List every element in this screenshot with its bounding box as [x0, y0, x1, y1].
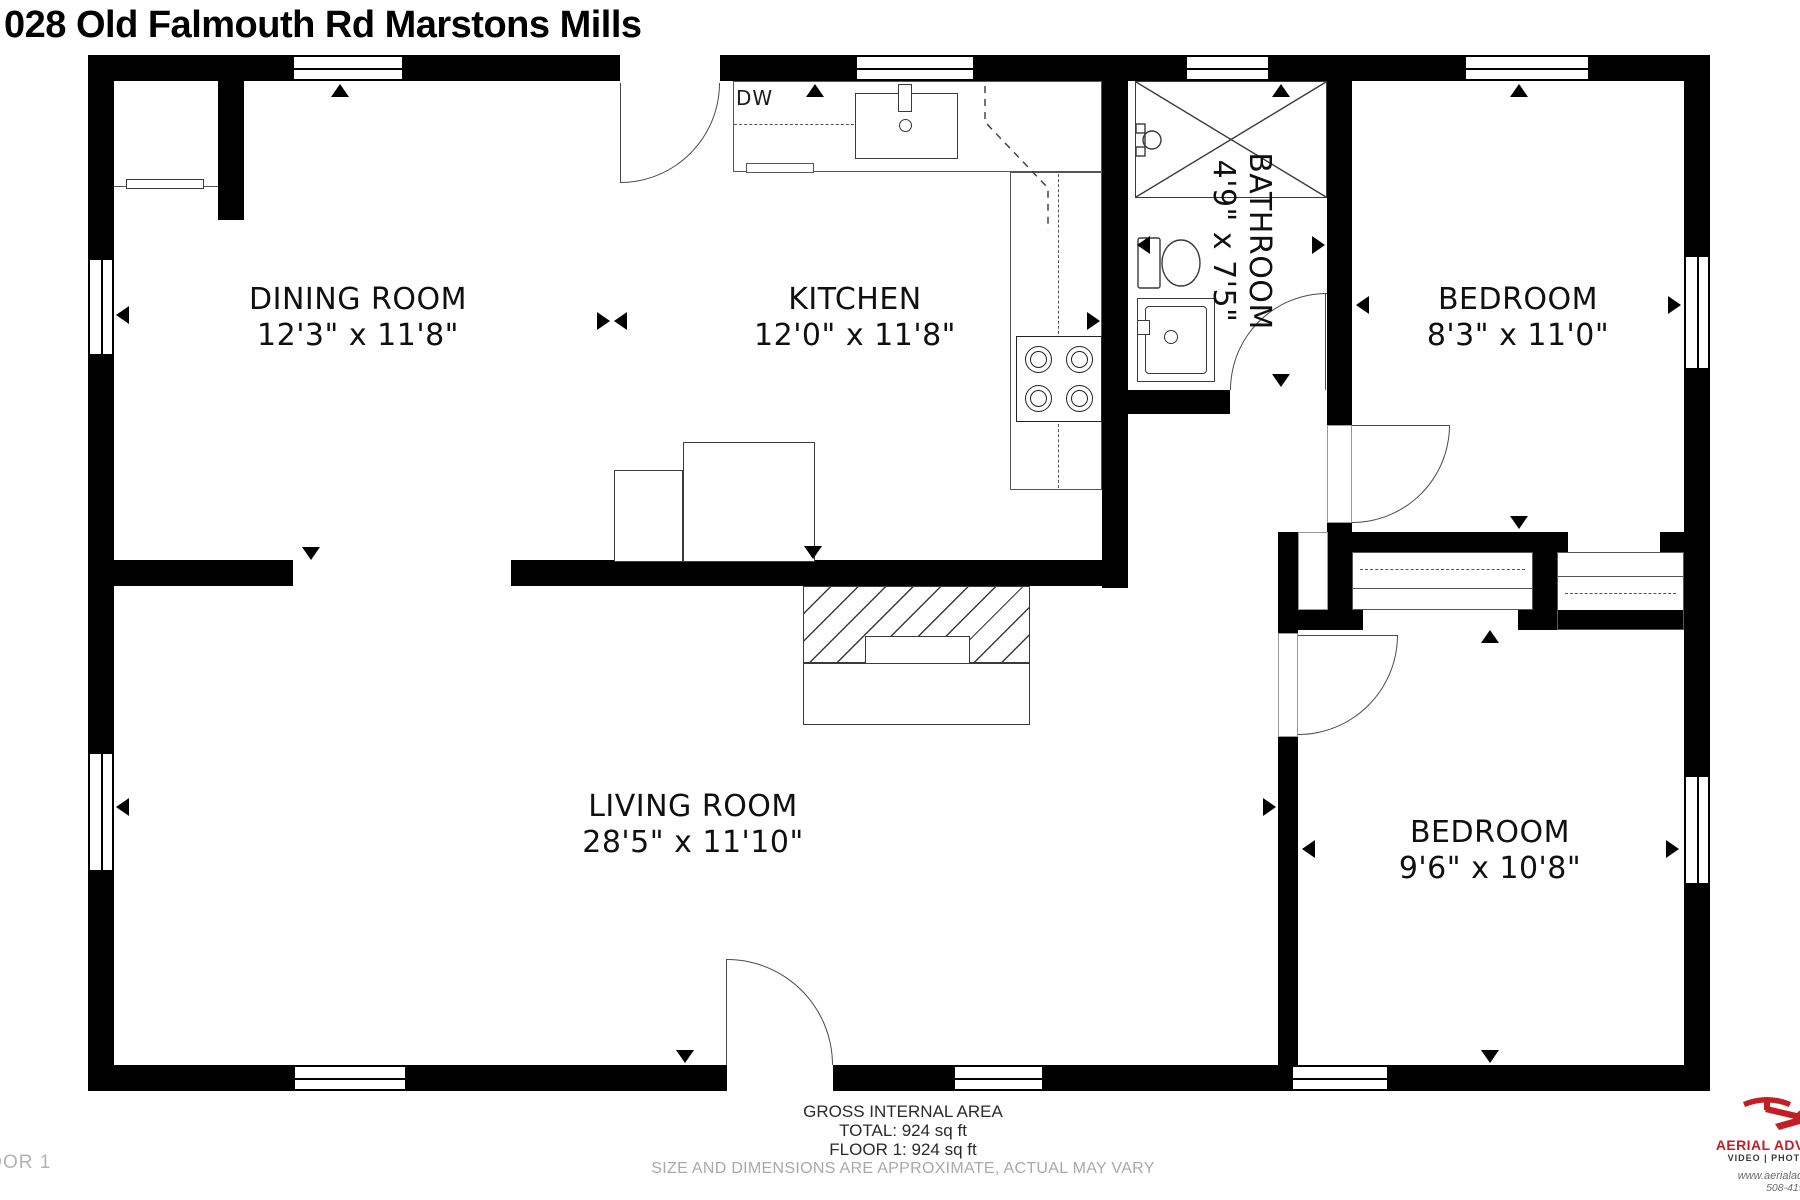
room-dims: 9'6" x 10'8"	[1320, 851, 1660, 887]
wall	[975, 55, 1185, 81]
closet-shelf	[1557, 576, 1684, 577]
window	[855, 55, 975, 81]
wall	[833, 1065, 953, 1091]
total-area: TOTAL: 924 sq ft	[603, 1121, 1203, 1140]
wall-bath-bedroom1	[1327, 81, 1352, 425]
window	[293, 1065, 407, 1091]
closet-rod	[1360, 569, 1525, 570]
logo-phone: 508-419-6	[1700, 1182, 1800, 1194]
floor1-area: FLOOR 1: 924 sq ft	[603, 1140, 1203, 1159]
aerial-advantage-logo: AERIAL ADVANTAGE VIDEO | PHOTOGRAPHY www…	[1700, 1084, 1800, 1194]
door-leaf	[1352, 425, 1450, 426]
window	[1185, 55, 1270, 81]
counter-dash	[1058, 424, 1059, 488]
wall-bath-bottom	[1102, 390, 1230, 414]
room-label-kitchen: KITCHEN 12'0" x 11'8"	[655, 282, 1055, 354]
window	[292, 55, 404, 81]
wall	[1270, 55, 1464, 81]
disclaimer: SIZE AND DIMENSIONS ARE APPROXIMATE, ACT…	[603, 1159, 1203, 1178]
room-label-living: LIVING ROOM 28'5" x 11'10"	[443, 789, 943, 861]
room-name: DINING ROOM	[158, 282, 558, 318]
door-arc-bedroom1	[1352, 425, 1450, 523]
door-opening-bedroom1	[1327, 425, 1352, 523]
dimension-arrow	[1137, 236, 1150, 254]
wall	[407, 1065, 727, 1091]
dimension-arrow	[676, 1050, 694, 1063]
dimension-arrow	[1666, 840, 1679, 858]
room-dims: 4'9" x 7'5"	[1205, 91, 1241, 391]
room-dims: 8'3" x 11'0"	[1348, 318, 1688, 354]
counter-dash	[734, 124, 854, 125]
dimension-arrow	[1481, 630, 1499, 643]
closet-bedroom1	[1557, 552, 1684, 630]
room-label-bedroom2: BEDROOM 9'6" x 10'8"	[1320, 815, 1660, 887]
wall	[1684, 55, 1710, 255]
fireplace-firebox	[865, 636, 970, 664]
wall	[88, 55, 292, 81]
footer: GROSS INTERNAL AREA TOTAL: 924 sq ft FLO…	[603, 1102, 1203, 1178]
wall-bedroom1-bottom	[1327, 532, 1568, 552]
dimension-arrow	[1481, 1050, 1499, 1063]
dimension-arrow	[597, 312, 610, 330]
closet-rod	[1565, 593, 1676, 594]
wall-dining-living	[88, 560, 293, 586]
window	[1464, 55, 1590, 81]
window	[1684, 775, 1710, 885]
dimension-arrow	[331, 84, 349, 97]
wall	[720, 55, 855, 81]
floor-page-label: FLOOR 1	[0, 1152, 51, 1174]
wall	[404, 55, 620, 81]
sink-drain	[899, 119, 912, 132]
wall	[1389, 1065, 1710, 1091]
wall	[1044, 1065, 1291, 1091]
closet-bedroom2	[1352, 552, 1533, 610]
dimension-arrow	[1302, 840, 1315, 858]
stove-burner	[1025, 385, 1052, 412]
room-name: BEDROOM	[1320, 815, 1660, 851]
wall-kitchen-bath	[1102, 81, 1128, 588]
door-arc-front-entry	[727, 959, 833, 1065]
dishwasher-label: DW	[736, 86, 773, 110]
kitchen-island	[683, 442, 815, 562]
hall-jamb	[1298, 532, 1328, 610]
wall	[88, 872, 114, 1091]
room-dims: 12'0" x 11'8"	[655, 318, 1055, 354]
closet-shelf	[1352, 588, 1533, 589]
logo-tagline: VIDEO | PHOTOGRAPHY	[1700, 1153, 1800, 1163]
kitchen-island	[614, 470, 683, 562]
door-leaf	[620, 83, 621, 183]
gross-area-title: GROSS INTERNAL AREA	[603, 1102, 1203, 1121]
drone-icon	[1737, 1084, 1800, 1132]
room-dims: 28'5" x 11'10"	[443, 825, 943, 861]
vanity-drain	[1164, 330, 1178, 344]
page-title: 028 Old Falmouth Rd Marstons Mills	[4, 4, 642, 47]
wall	[88, 55, 114, 258]
door-arc-bedroom2	[1298, 635, 1398, 735]
door-leaf	[1325, 293, 1326, 390]
wall	[88, 356, 114, 752]
vanity-handle	[1137, 320, 1150, 335]
counter-dash	[1058, 174, 1059, 334]
dimension-arrow	[1510, 84, 1528, 97]
wall	[88, 1065, 293, 1091]
window	[953, 1065, 1044, 1091]
wall-bedroom2-left	[1278, 532, 1298, 633]
dimension-arrow	[614, 312, 627, 330]
wall-bedroom1-bottom	[1660, 532, 1684, 552]
wall-bedroom2-left	[1278, 737, 1298, 1065]
window	[88, 258, 114, 356]
dimension-arrow	[1510, 516, 1528, 529]
room-name: BATHROOM	[1241, 91, 1277, 391]
room-label-bathroom: BATHROOM 4'9" x 7'5"	[1203, 91, 1277, 391]
stove-burner	[1066, 385, 1093, 412]
door-arc-side-entry	[620, 83, 720, 183]
door-leaf	[726, 959, 727, 1065]
dimension-arrow	[804, 546, 822, 559]
dimension-arrow	[302, 547, 320, 560]
room-dims: 12'3" x 11'8"	[158, 318, 558, 354]
fireplace-hearth	[803, 663, 1030, 725]
dimension-arrow	[1312, 236, 1325, 254]
door-leaf	[1298, 635, 1398, 636]
dimension-arrow	[116, 798, 129, 816]
room-name: KITCHEN	[655, 282, 1055, 318]
dishwasher-tray	[746, 163, 814, 173]
dimension-arrow	[116, 306, 129, 324]
dimension-arrow	[1263, 798, 1276, 816]
window	[88, 752, 114, 872]
door-opening-bedroom2	[1278, 633, 1298, 737]
logo-brand: AERIAL ADVANTAGE	[1700, 1137, 1800, 1153]
sink-faucet	[898, 84, 912, 112]
logo-website: www.aerialadvantage	[1700, 1170, 1800, 1182]
room-name: LIVING ROOM	[443, 789, 943, 825]
stove-burner	[1066, 346, 1093, 373]
floor-plan: 028 Old Falmouth Rd Marstons Mills	[0, 0, 1800, 1200]
dimension-arrow	[1087, 312, 1100, 330]
wall-entry-nook	[218, 81, 244, 220]
dimension-arrow	[806, 84, 824, 97]
wall-kitchen-living	[511, 560, 1120, 586]
window	[1291, 1065, 1389, 1091]
room-name: BEDROOM	[1348, 282, 1688, 318]
wall	[1684, 370, 1710, 775]
closet-shelf	[126, 179, 204, 189]
room-label-dining: DINING ROOM 12'3" x 11'8"	[158, 282, 558, 354]
room-label-bedroom1: BEDROOM 8'3" x 11'0"	[1348, 282, 1688, 354]
wall	[1684, 885, 1710, 1091]
